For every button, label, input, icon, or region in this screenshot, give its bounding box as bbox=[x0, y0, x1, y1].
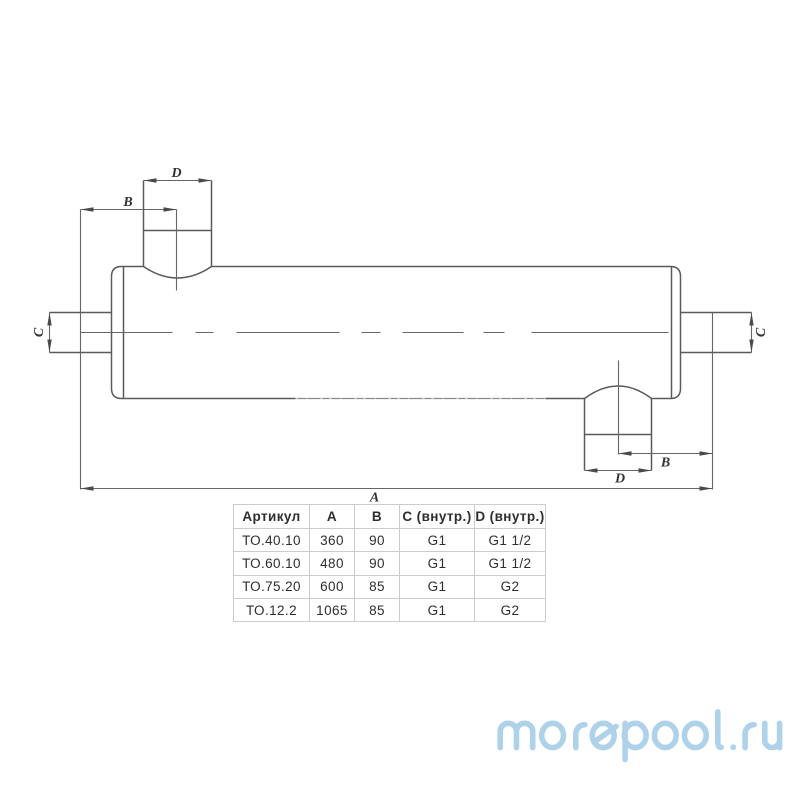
svg-text:B: B bbox=[660, 456, 670, 471]
svg-text:C: C bbox=[754, 327, 769, 337]
svg-text:B: B bbox=[122, 195, 132, 210]
svg-text:D: D bbox=[614, 472, 625, 487]
svg-text:D: D bbox=[170, 166, 181, 181]
svg-text:C: C bbox=[32, 327, 47, 337]
